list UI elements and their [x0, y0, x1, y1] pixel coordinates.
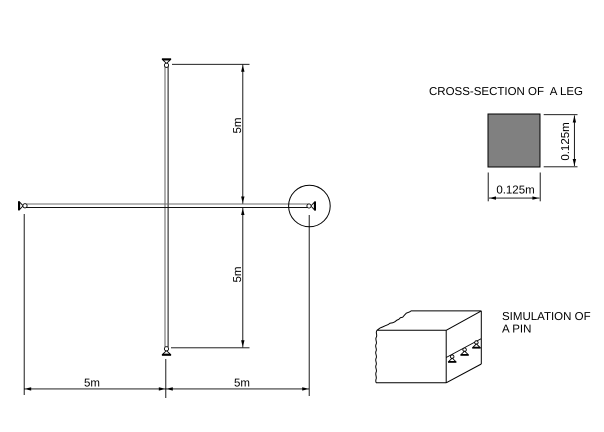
- svg-text:A PIN: A PIN: [502, 324, 531, 336]
- svg-text:5m: 5m: [84, 378, 100, 390]
- svg-text:0.125m: 0.125m: [496, 185, 534, 197]
- svg-text:CROSS-SECTION OF A LEG: CROSS-SECTION OF A LEG: [429, 86, 583, 98]
- svg-text:0.125m: 0.125m: [560, 122, 572, 160]
- svg-text:5m: 5m: [232, 118, 244, 134]
- svg-text:SIMULATION OF: SIMULATION OF: [502, 311, 591, 323]
- svg-text:5m: 5m: [232, 267, 244, 283]
- svg-text:5m: 5m: [234, 378, 250, 390]
